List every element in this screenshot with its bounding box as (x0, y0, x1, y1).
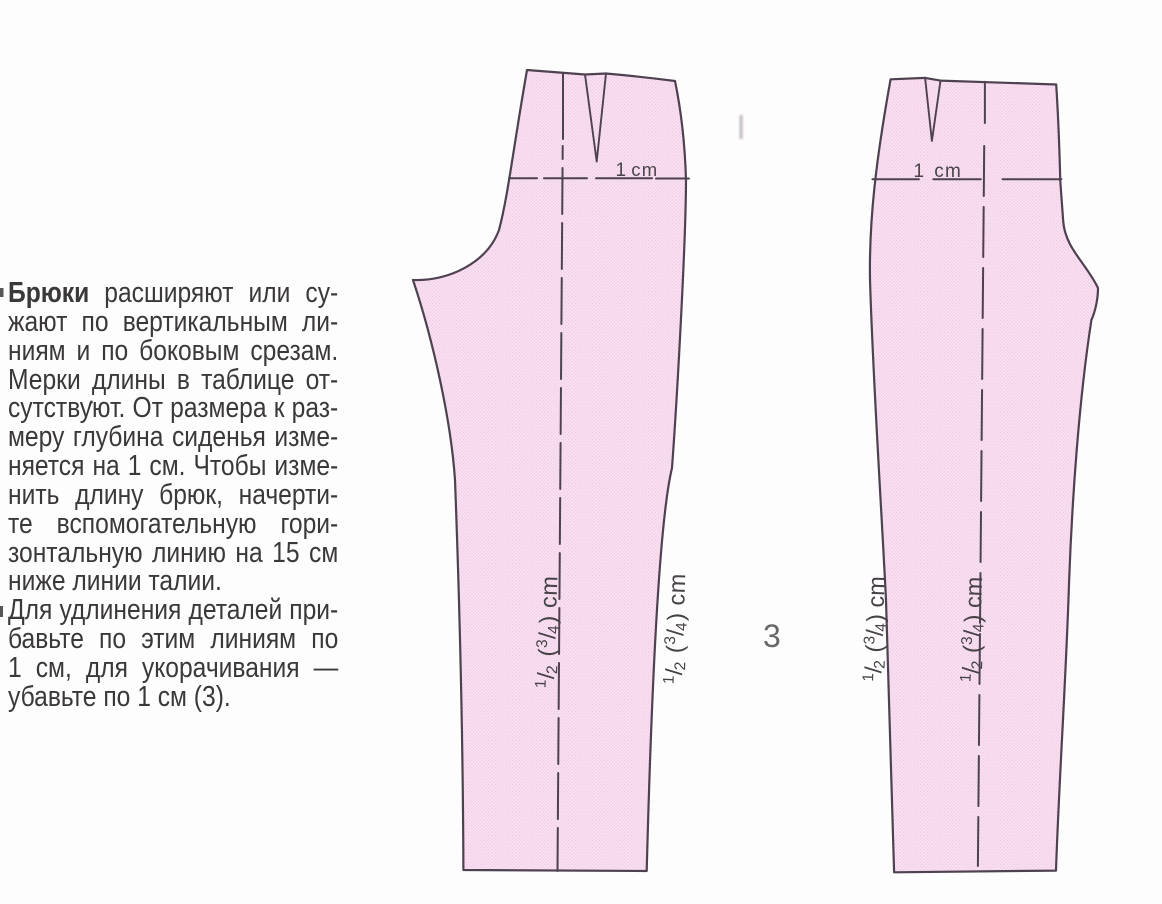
svg-text:1/2 (3/4) cm: 1/2 (3/4) cm (533, 575, 565, 689)
svg-text:1cm: 1cm (616, 159, 659, 181)
svg-text:1/2 (3/4) cm: 1/2 (3/4) cm (860, 576, 892, 683)
svg-text:1/2 (3/4) cm: 1/2 (3/4) cm (661, 573, 693, 685)
svg-text:1cm: 1cm (914, 161, 963, 182)
